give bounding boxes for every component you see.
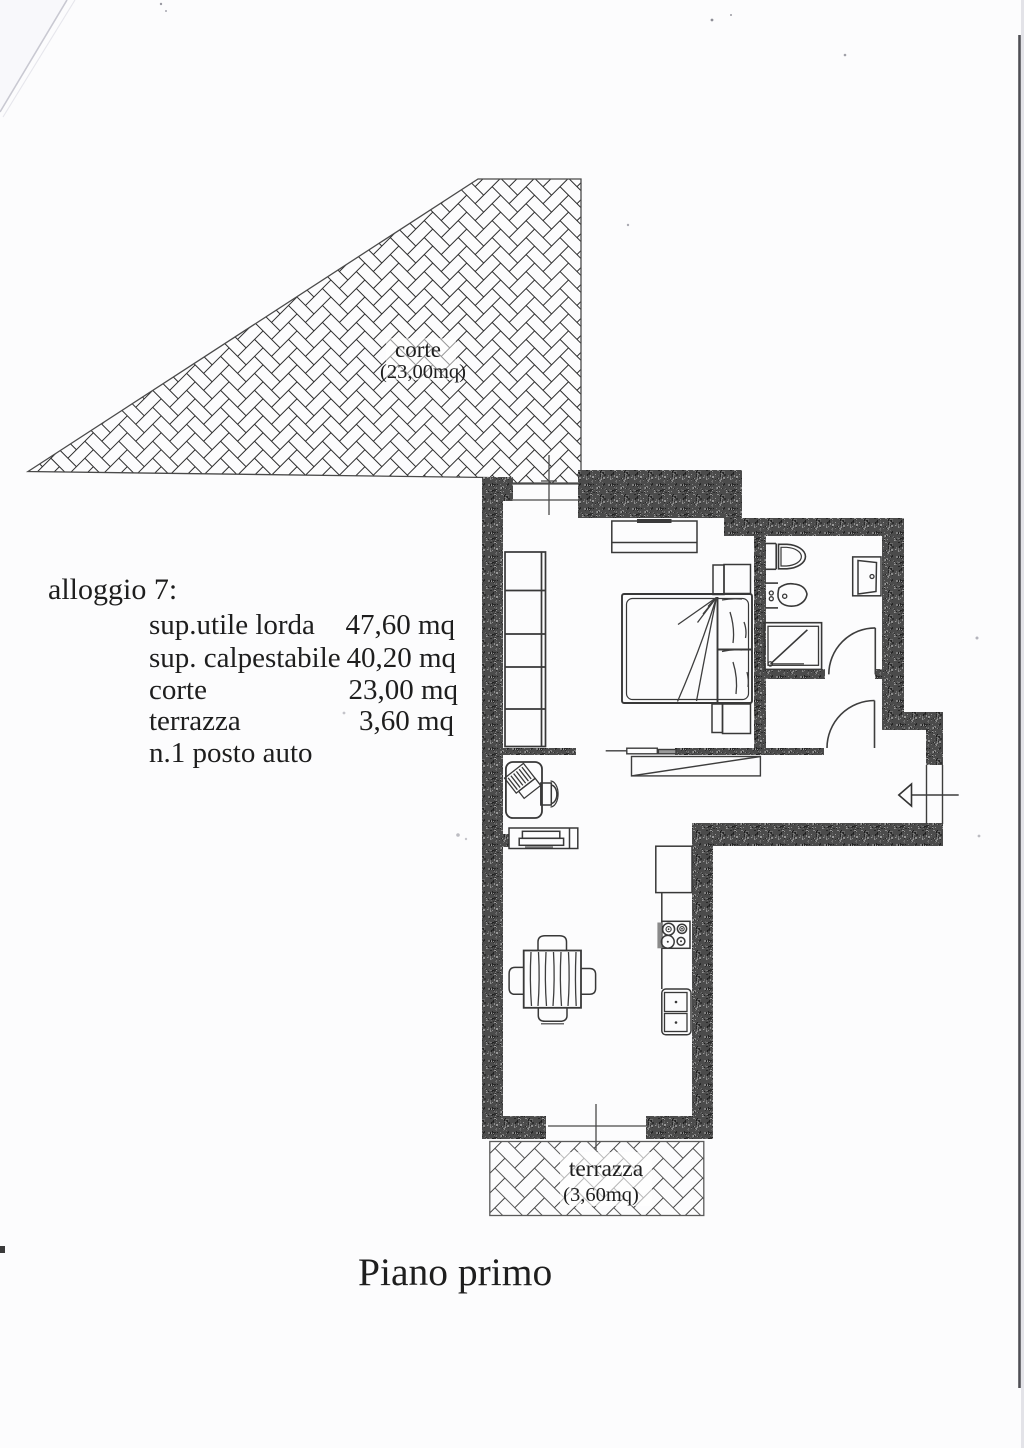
svg-text:sup. calpestabile: sup. calpestabile: [149, 642, 341, 674]
svg-text:corte: corte: [395, 337, 441, 362]
svg-text:3,60 mq: 3,60 mq: [359, 705, 454, 737]
svg-text:terrazza: terrazza: [149, 705, 241, 737]
svg-text:23,00 mq: 23,00 mq: [348, 674, 458, 706]
svg-text:Piano primo: Piano primo: [358, 1250, 552, 1294]
svg-text:40,20 mq: 40,20 mq: [346, 642, 456, 674]
svg-text:n.1 posto auto: n.1 posto auto: [149, 737, 313, 769]
svg-text:terrazza: terrazza: [569, 1156, 644, 1182]
svg-text:(3,60mq): (3,60mq): [563, 1184, 639, 1206]
svg-text:alloggio 7:: alloggio 7:: [48, 573, 177, 606]
svg-text:sup.utile lorda: sup.utile lorda: [149, 609, 315, 641]
svg-text:(23,00mq): (23,00mq): [380, 361, 466, 383]
svg-text:47,60 mq: 47,60 mq: [345, 609, 455, 641]
svg-text:corte: corte: [149, 674, 207, 706]
